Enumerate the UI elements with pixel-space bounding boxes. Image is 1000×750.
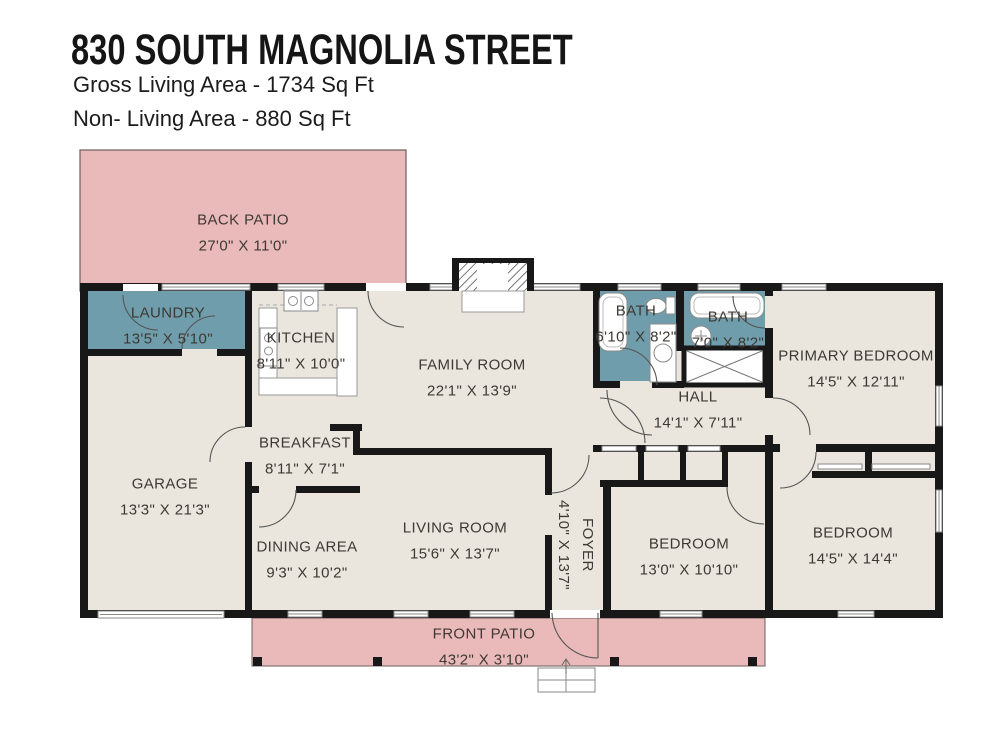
- room-dims: 22'1" X 13'9": [418, 378, 525, 404]
- room-label-dining-area: DINING AREA 9'3" X 10'2": [256, 535, 357, 586]
- room-dims: 4'10" X 13'7": [551, 500, 575, 590]
- room-dims: 14'5" X 12'11": [778, 369, 933, 395]
- room-label-back-patio: BACK PATIO 27'0" X 11'0": [197, 208, 289, 259]
- room-dims: 8'11" X 10'0": [257, 351, 346, 377]
- room-label-laundry: LAUNDRY 13'5" X 5'10": [123, 301, 213, 352]
- room-label-breakfast: BREAKFAST 8'11" X 7'1": [259, 431, 351, 482]
- room-dims: 27'0" X 11'0": [197, 233, 289, 259]
- room-dims: 14'5" X 14'4": [808, 546, 898, 572]
- room-label-foyer: FOYER 4'10" X 13'7": [551, 500, 599, 590]
- room-label-hall-bath: BATH 6'10" X 8'2": [595, 299, 676, 350]
- room-name: DINING AREA: [256, 535, 357, 561]
- room-dims: 13'3" X 21'3": [120, 497, 210, 523]
- room-name: BATH: [692, 305, 765, 331]
- room-name: BEDROOM: [640, 532, 739, 558]
- room-name: GARAGE: [120, 472, 210, 498]
- room-label-kitchen: KITCHEN 8'11" X 10'0": [257, 326, 346, 377]
- room-label-hall: HALL 14'1" X 7'11": [654, 385, 743, 436]
- kitchen-sink-icon: [284, 291, 318, 311]
- room-label-garage: GARAGE 13'3" X 21'3": [120, 472, 210, 523]
- room-name: KITCHEN: [257, 326, 346, 352]
- room-dims: 13'0" X 10'10": [640, 557, 739, 583]
- room-name: HALL: [654, 385, 743, 411]
- room-dims: 9'3" X 10'2": [256, 560, 357, 586]
- room-name: FOYER: [575, 500, 599, 590]
- room-name: BEDROOM: [808, 521, 898, 547]
- room-name: FAMILY ROOM: [418, 353, 525, 379]
- room-name: PRIMARY BEDROOM: [778, 344, 933, 370]
- floor-plan-page: 830 SOUTH MAGNOLIA STREET Gross Living A…: [0, 0, 1000, 750]
- room-label-living-room: LIVING ROOM 15'6" X 13'7": [403, 516, 507, 567]
- room-label-front-patio: FRONT PATIO 43'2" X 3'10": [433, 622, 536, 673]
- room-label-family-room: FAMILY ROOM 22'1" X 13'9": [418, 353, 525, 404]
- room-dims: 13'5" X 5'10": [123, 326, 213, 352]
- room-name: LIVING ROOM: [403, 516, 507, 542]
- room-dims: 8'11" X 7'1": [259, 456, 351, 482]
- room-name: FRONT PATIO: [433, 622, 536, 648]
- room-dims: 6'10" X 8'2": [595, 324, 676, 350]
- room-dims: 7'0" X 8'2": [692, 330, 765, 356]
- room-label-primary-bedroom: PRIMARY BEDROOM 14'5" X 12'11": [778, 344, 933, 395]
- room-name: BATH: [595, 299, 676, 325]
- room-name: BREAKFAST: [259, 431, 351, 457]
- room-name: LAUNDRY: [123, 301, 213, 327]
- room-label-primary-bath: BATH 7'0" X 8'2": [692, 305, 765, 356]
- fireplace-icon: [452, 258, 534, 312]
- room-dims: 14'1" X 7'11": [654, 410, 743, 436]
- room-label-bedroom-right: BEDROOM 14'5" X 14'4": [808, 521, 898, 572]
- room-label-bedroom-center: BEDROOM 13'0" X 10'10": [640, 532, 739, 583]
- room-dims: 15'6" X 13'7": [403, 541, 507, 567]
- room-name: BACK PATIO: [197, 208, 289, 234]
- garage-door: [98, 611, 224, 618]
- room-dims: 43'2" X 3'10": [433, 647, 536, 673]
